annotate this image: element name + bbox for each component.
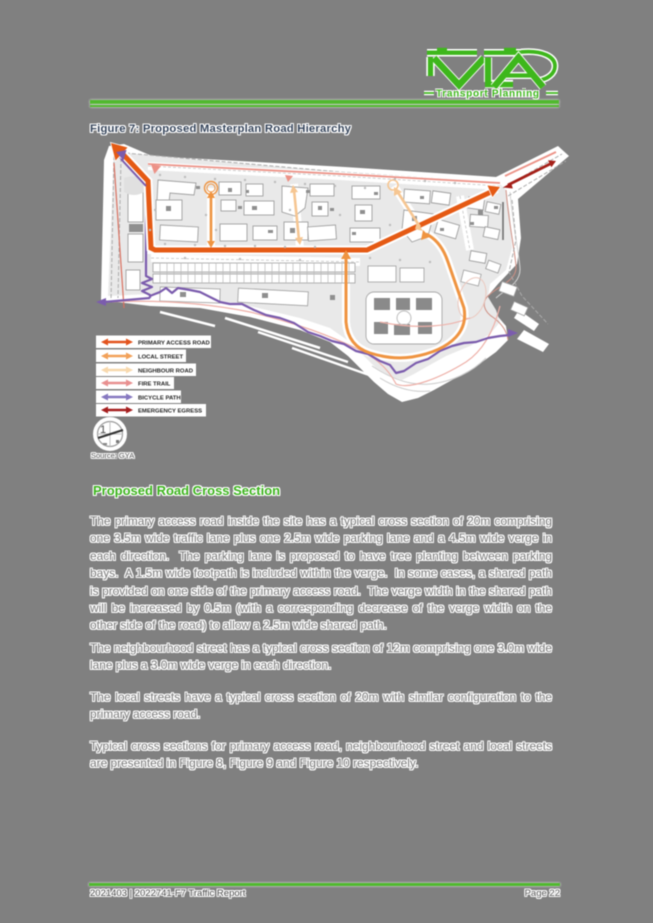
svg-text:BICYCLE PATH: BICYCLE PATH <box>138 396 181 402</box>
svg-text:LOCAL STREET: LOCAL STREET <box>138 355 183 361</box>
svg-text:NEIGHBOUR ROAD: NEIGHBOUR ROAD <box>138 369 193 375</box>
svg-text:1: 1 <box>100 424 106 436</box>
svg-text:EMERGENCY EGRESS: EMERGENCY EGRESS <box>138 409 202 415</box>
svg-text:PRIMARY ACCESS ROAD: PRIMARY ACCESS ROAD <box>138 341 210 347</box>
svg-text:Transport Planning: Transport Planning <box>436 89 540 100</box>
svg-text:FIRE TRAIL: FIRE TRAIL <box>138 382 171 388</box>
